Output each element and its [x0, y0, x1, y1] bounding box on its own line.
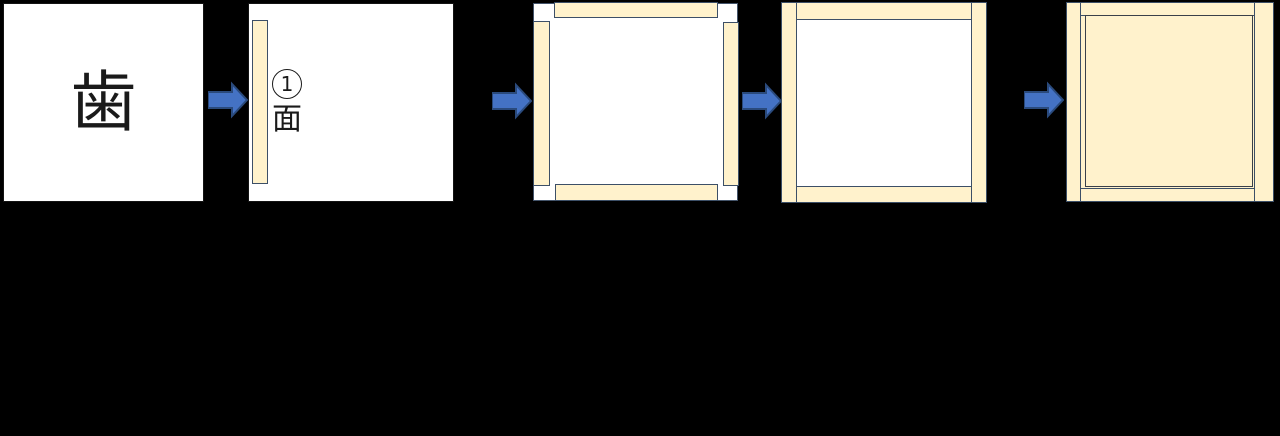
plank-top	[1080, 2, 1255, 16]
right-arrow-icon	[492, 82, 532, 120]
kanji-character: 歯	[71, 70, 137, 136]
plank-left	[781, 2, 797, 203]
panel-assembled-frame	[781, 2, 987, 203]
plank-right	[723, 22, 739, 186]
frame-open-center	[796, 18, 972, 188]
diagram-canvas: 歯 1 面	[0, 0, 1280, 436]
panel-first-side: 1 面	[248, 3, 454, 202]
plank-bottom	[796, 186, 972, 203]
plank-bottom	[555, 184, 718, 201]
panel-completed-face	[1066, 2, 1274, 202]
plank-left	[1066, 2, 1081, 202]
step-text-men: 面	[272, 105, 302, 135]
plank-right	[971, 2, 987, 203]
right-arrow-icon	[742, 82, 782, 120]
plank-top	[796, 2, 972, 20]
right-arrow-icon	[208, 81, 248, 119]
right-block-arrow-glyph	[208, 81, 248, 119]
panel-four-planks	[533, 3, 738, 201]
face-panel-inner-outline	[1085, 15, 1253, 187]
plank-top	[554, 2, 718, 18]
panel-kanji-reference: 歯	[3, 3, 204, 202]
plank-right	[1254, 2, 1274, 202]
plank-bottom	[1080, 188, 1255, 202]
right-block-arrow-glyph	[742, 82, 782, 120]
plank-left	[252, 20, 268, 184]
circled-number-1: 1	[272, 69, 302, 99]
plank-left	[533, 21, 550, 186]
step-label: 1 面	[272, 69, 302, 135]
right-block-arrow-glyph	[1024, 81, 1064, 119]
right-block-arrow-glyph	[492, 82, 532, 120]
right-arrow-icon	[1024, 81, 1064, 119]
